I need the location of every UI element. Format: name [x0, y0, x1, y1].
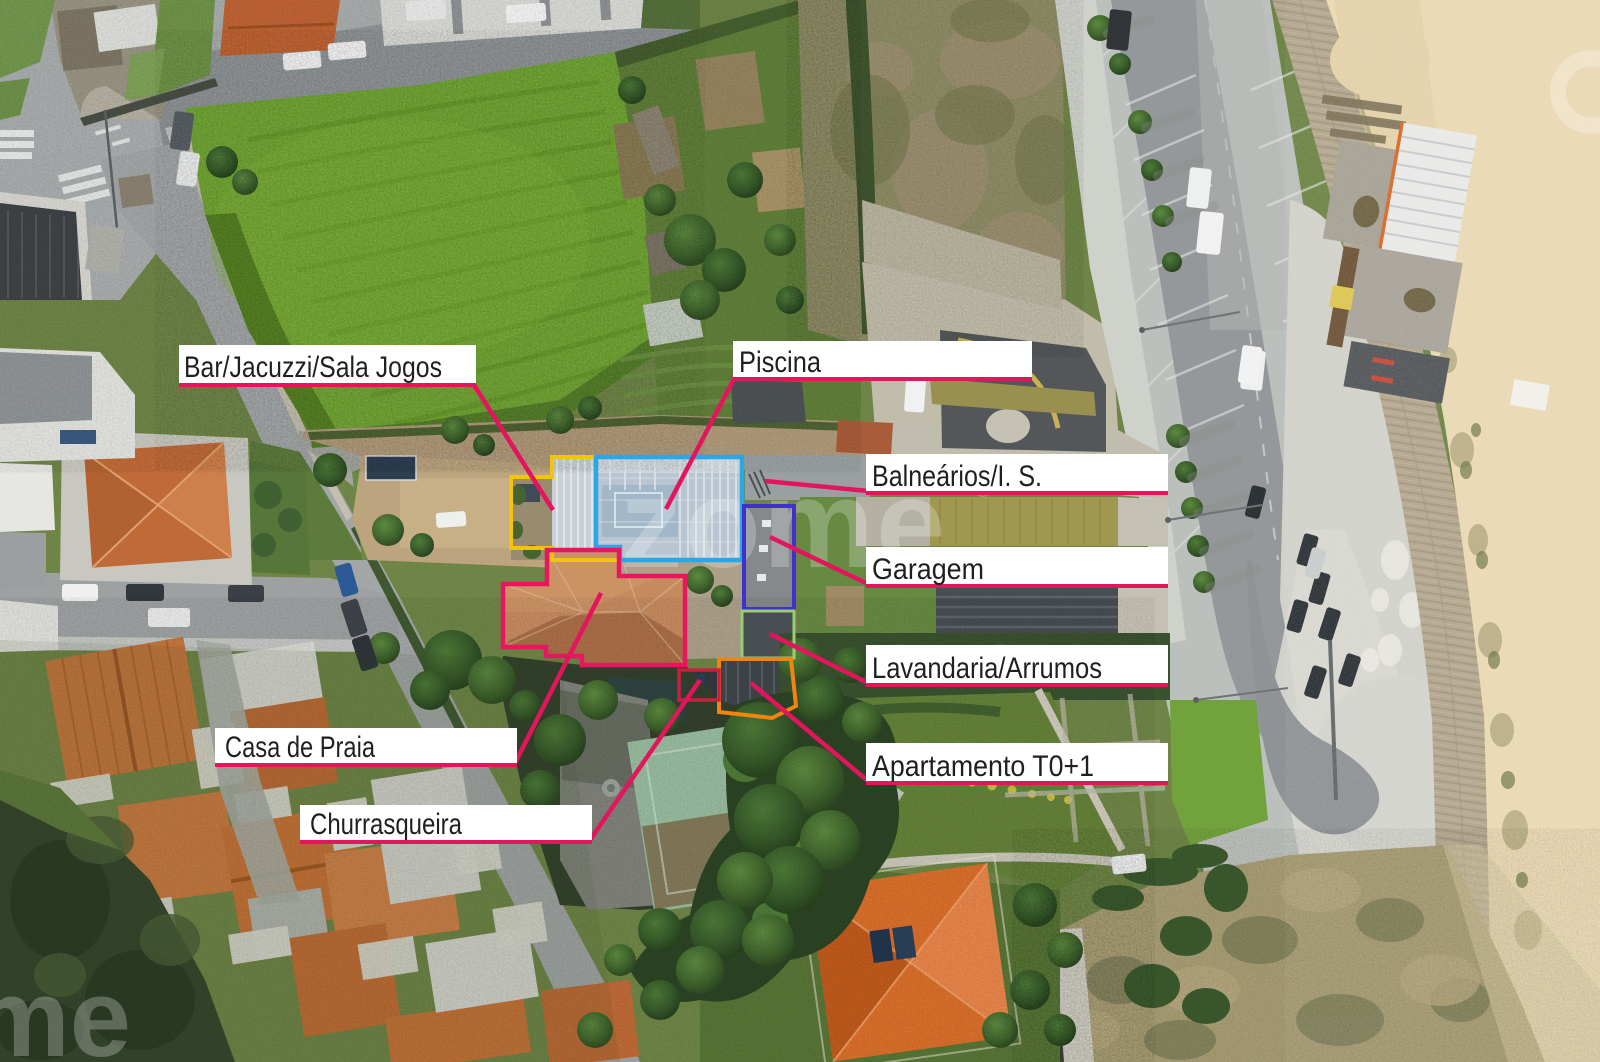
- svg-text:Lavandaria/Arrumos: Lavandaria/Arrumos: [872, 652, 1102, 685]
- svg-text:Churrasqueira: Churrasqueira: [310, 808, 462, 841]
- svg-text:me: me: [0, 957, 131, 1062]
- svg-text:Casa de Praia: Casa de Praia: [225, 731, 375, 764]
- svg-text:Garagem: Garagem: [872, 553, 984, 586]
- svg-text:Apartamento T0+1: Apartamento T0+1: [872, 750, 1094, 783]
- svg-text:Balneários/I. S.: Balneários/I. S.: [872, 460, 1042, 493]
- svg-text:Bar/Jacuzzi/Sala Jogos: Bar/Jacuzzi/Sala Jogos: [184, 351, 442, 384]
- svg-text:Piscina: Piscina: [739, 346, 821, 379]
